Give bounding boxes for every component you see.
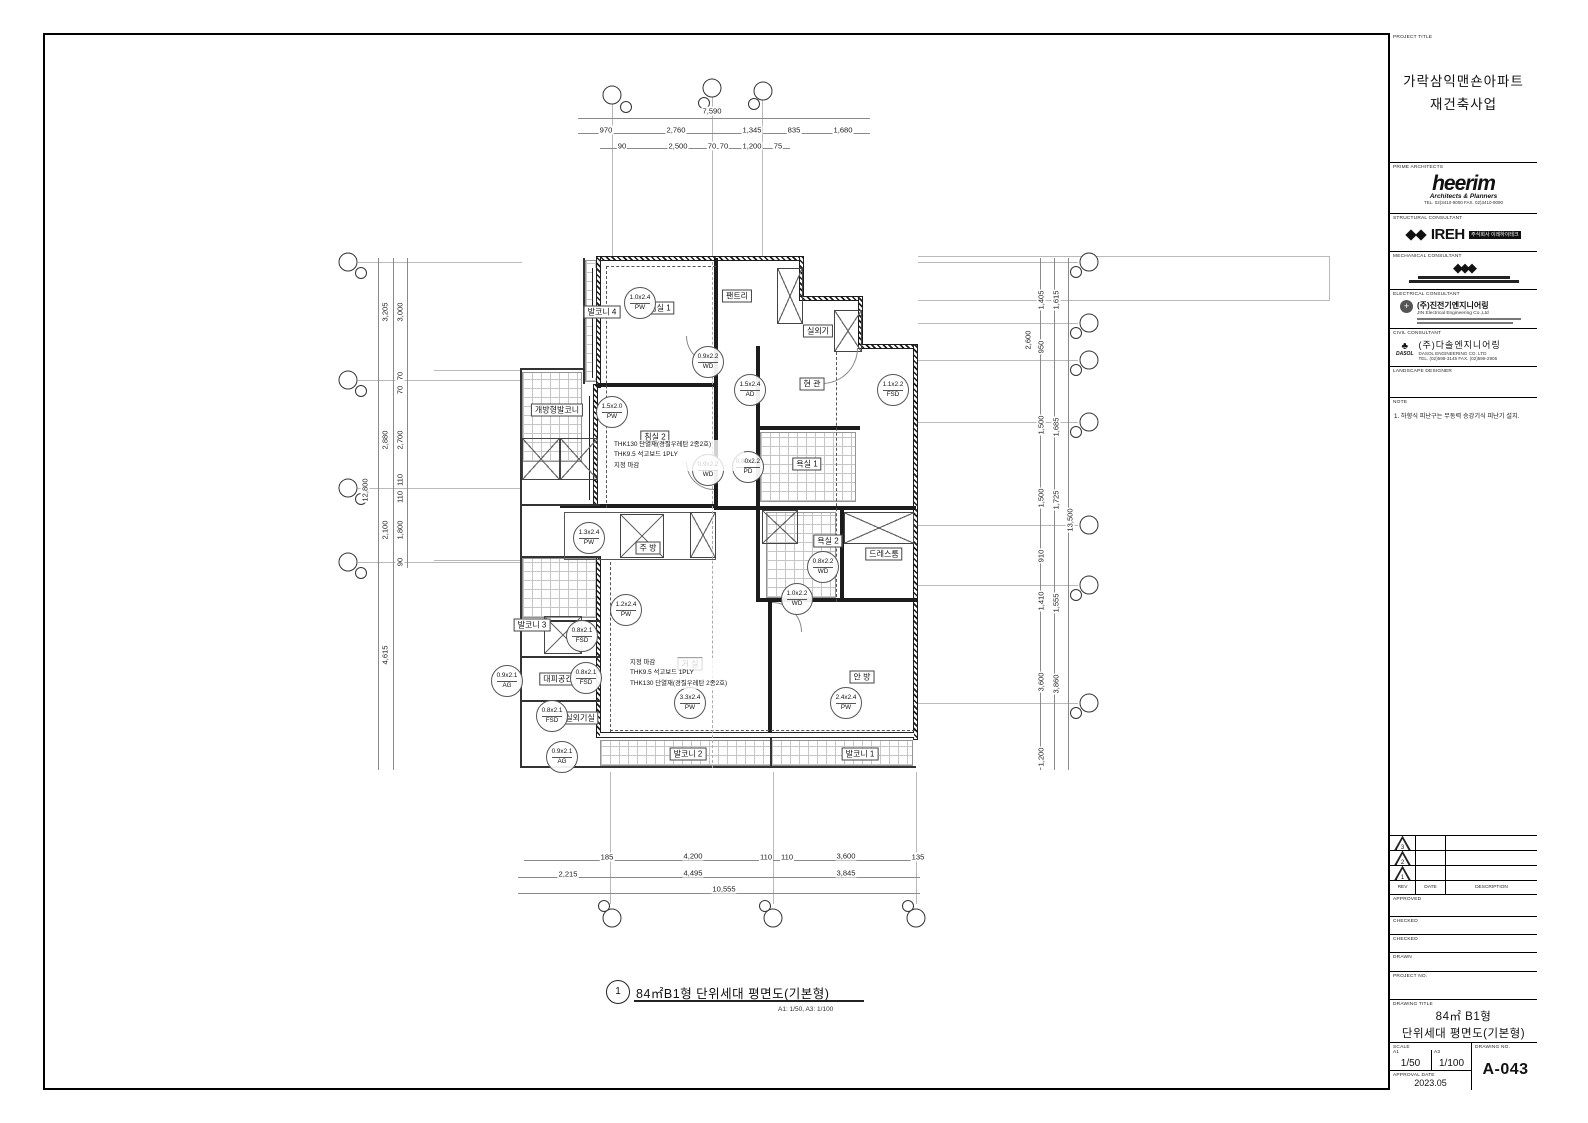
tag-size: 0.8x2.1: [576, 670, 597, 679]
scale-a1-value: 1/50: [1390, 1058, 1431, 1069]
grid-bubble: [598, 900, 610, 912]
tag-code: WD: [792, 601, 803, 607]
door-tag: 0.8x2.1FSD: [566, 620, 598, 652]
tag-size: 0.8x2.1: [542, 708, 563, 717]
mechanical-text-bar: [1418, 276, 1510, 279]
civil-name: (주)다솔엔지니어링: [1419, 338, 1501, 351]
revision-number: 3: [1394, 845, 1411, 851]
revision-triangle-icon: 3: [1394, 836, 1411, 851]
grid-bubble: [355, 385, 367, 397]
dim-label: 70: [707, 142, 717, 151]
dim-label: 70: [396, 371, 405, 381]
tag-code: PW: [841, 705, 851, 711]
dim-label: 1,500: [1037, 414, 1046, 435]
drawing-no-cell: DRAWING NO. A-043: [1472, 1043, 1539, 1090]
door-tag: 0.9x2.1AG: [491, 665, 523, 697]
insulation-line: [606, 266, 607, 508]
dim-label: 950: [1037, 340, 1046, 355]
grid-line: [358, 262, 522, 263]
dim-label: 7,590: [701, 107, 722, 116]
tag-code: WD: [703, 472, 714, 478]
tag-code: AD: [746, 392, 755, 398]
window-tag: 2.4x2.4PW: [830, 687, 862, 719]
grid-bubble: [759, 900, 771, 912]
door-tag: 1.2x2.4PW: [610, 594, 642, 626]
ireh-chip: 주식회사 이레하이테크: [1469, 231, 1520, 239]
dasol-logo: ♣ DASOL: [1396, 342, 1414, 357]
grid-bubble: [339, 553, 358, 572]
caption-underline: [634, 1000, 864, 1002]
electrical-text-bar: [1417, 322, 1513, 324]
electrical-sub: JIN Electrical Engineering Co.,Ltd: [1417, 311, 1521, 316]
insulation-note: 지정 마감 THK9.5 석고보드 1PLY THK130 단열재(경질우레탄 …: [630, 658, 760, 689]
scale-cell: SCALE A1 1/50 A3 1/100: [1390, 1043, 1472, 1071]
dim-label: 12,800: [361, 477, 370, 502]
dim-label: 2,215: [557, 870, 578, 879]
tag-code: AG: [502, 683, 511, 689]
door-tag: 1.5x2.4AD: [734, 374, 766, 406]
tag-size: 1.0x2.4: [630, 295, 651, 304]
shaft: [834, 310, 862, 352]
grid-bubble: [1080, 351, 1099, 370]
revision-number: 2: [1394, 860, 1411, 866]
project-title-line1: 가락삼익맨숀아파트: [1390, 71, 1537, 94]
grid-bubble: [1080, 314, 1099, 333]
door-tag: 1.0x2.4PW: [624, 287, 656, 319]
note-line: THK9.5 석고보드 1PLY: [630, 668, 760, 678]
tag-code: PD: [744, 469, 753, 475]
shaft: [522, 438, 560, 480]
approved-cell: APPROVED: [1390, 895, 1537, 917]
wall: [858, 344, 918, 349]
door-tag: 0.9x2.1AG: [546, 741, 578, 773]
dim-label: 10,555: [711, 885, 736, 894]
wall: [520, 368, 522, 768]
room-label-balcony3: 발코니 3: [514, 619, 551, 632]
dim-label: 1,500: [1037, 487, 1046, 508]
landscape-designer-cell: LANDSCAPE DESIGNER: [1390, 367, 1537, 398]
dim-label: 110: [396, 473, 405, 487]
drawn-label: DRAWN: [1393, 955, 1412, 960]
dim-label: 90: [617, 142, 627, 151]
tag-code: WD: [818, 569, 829, 575]
tag-size: 0.8x2.2: [813, 559, 834, 568]
door-tag: 0.8x2.1FSD: [570, 662, 602, 694]
tag-size: 1.2x2.4: [616, 602, 637, 611]
electrical-text-bar: [1417, 318, 1521, 320]
grid-line: [358, 562, 522, 563]
grid-line: [773, 772, 774, 904]
shaft: [560, 438, 598, 480]
balcony3-floor: [522, 558, 598, 618]
context-line: [918, 300, 1330, 301]
civil-consultant-cell: CIVIL CONSULTANT ♣ DASOL (주)다솔엔지니어링 DASO…: [1390, 329, 1537, 367]
dimension-line: [578, 118, 870, 119]
landscape-label: LANDSCAPE DESIGNER: [1393, 369, 1452, 374]
note-line: THK130 단열재(경질우레탄 2종2호): [614, 440, 744, 450]
checked-cell: CHECKED: [1390, 935, 1537, 953]
dim-label: 2,880: [381, 429, 390, 450]
room-label-ac-unit: 실외기: [803, 325, 833, 338]
drawing-title: 84㎡ B1형 단위세대 평면도(기본형): [1390, 1009, 1537, 1042]
grid-bubble: [339, 253, 358, 272]
electrical-logo-row: + (주)진전기엔지니어링 JIN Electrical Engineering…: [1400, 300, 1521, 324]
insulation-line: [610, 562, 611, 732]
tag-size: 1.1x2.2: [883, 382, 904, 391]
project-no-label: PROJECT NO.: [1393, 974, 1427, 979]
scale-a3-cell: A3 1/100: [1431, 1050, 1472, 1071]
room-label-balcony1: 발코니 1: [842, 748, 879, 761]
caption-number: 1: [606, 980, 630, 1004]
dimension-line: [1040, 258, 1041, 770]
dim-label: 1,345: [741, 126, 762, 135]
dim-label: 110: [759, 853, 773, 862]
approved-label: APPROVED: [1393, 897, 1421, 902]
revision-row: 1: [1390, 866, 1537, 881]
shaft: [762, 510, 798, 544]
dim-label: 2,700: [396, 429, 405, 450]
electrical-label: ELECTRICAL CONSULTANT: [1393, 292, 1460, 297]
electrical-consultant-cell: ELECTRICAL CONSULTANT + (주)진전기엔지니어링 JIN …: [1390, 290, 1537, 329]
note-cell: NOTE 1. 하향식 피난구는 무동력 승강기식 피난기 설치.: [1390, 398, 1537, 836]
dim-label: 1,555: [1052, 592, 1061, 613]
dim-label: 1,200: [1037, 746, 1046, 767]
title-block: PROJECT TITLE 가락삼익맨숀아파트 재건축사업 PRIME ARCH…: [1388, 33, 1537, 1090]
checked-label: CHECKED: [1393, 919, 1418, 924]
dim-label: 1,405: [1037, 289, 1046, 310]
tag-code: AG: [557, 759, 566, 765]
dim-label: 1,615: [1052, 289, 1061, 310]
context-line: [1329, 256, 1330, 301]
tag-size: 1.3x2.4: [579, 530, 600, 539]
description-header: DESCRIPTION: [1446, 881, 1537, 894]
grid-bubble: [355, 267, 367, 279]
approval-date-value: 2023.05: [1390, 1078, 1471, 1088]
grid-bubble: [355, 567, 367, 579]
project-no-cell: PROJECT NO.: [1390, 972, 1537, 1000]
dim-label: 3,845: [835, 869, 856, 878]
mechanical-label: MECHANICAL CONSULTANT: [1393, 254, 1462, 259]
grid-line: [358, 488, 522, 489]
wall: [770, 738, 772, 768]
caption-scale: A1: 1/50, A3: 1/100: [778, 1006, 833, 1013]
revision-triangle-icon: 2: [1394, 851, 1411, 866]
wall: [598, 256, 804, 261]
revision-row: 3: [1390, 836, 1537, 851]
note-line: THK9.5 석고보드 1PLY: [614, 450, 744, 460]
door-tag: 1.5x2.0PW: [596, 396, 628, 428]
drawing-title-label: DRAWING TITLE: [1393, 1002, 1433, 1007]
tag-size: 1.0x2.2: [787, 591, 808, 600]
heerim-name: heerim: [1390, 175, 1537, 193]
door-tag: 1.3x2.4PW: [573, 522, 605, 554]
room-label-open-balcony: 개방형발코니: [531, 404, 583, 417]
room-label-master-bedroom: 안 방: [850, 671, 875, 684]
dimension-line: [393, 258, 394, 770]
drawing-sheet: 침실 1 침실 2 팬트리 실외기 현 관 욕실 1 욕실 2 드레스룸 주 방…: [0, 0, 1588, 1123]
dim-label: 3,205: [381, 301, 390, 322]
dim-label: 90: [396, 557, 405, 567]
dimension-line: [578, 133, 870, 134]
note-line: 지정 마감: [614, 461, 744, 471]
dim-label: 70: [719, 142, 729, 151]
tag-code: FSD: [580, 680, 593, 686]
wall: [583, 258, 585, 384]
wall: [520, 656, 600, 658]
context-line: [918, 256, 1330, 257]
wall: [520, 504, 600, 506]
structural-label: STRUCTURAL CONSULTANT: [1393, 216, 1462, 221]
tag-code: PW: [607, 414, 617, 420]
tag-size: 0.9x2.2: [698, 354, 719, 363]
grid-bubble: [1070, 266, 1082, 278]
dim-label: 1,685: [1052, 416, 1061, 437]
tag-size: 1.5x2.0: [602, 404, 623, 413]
dimension-line: [378, 258, 379, 770]
wall: [520, 766, 916, 768]
dim-label: 1,200: [741, 142, 762, 151]
revision-triangle-icon: 1: [1394, 866, 1411, 881]
door-tag: 0.9x2.2WD: [692, 346, 724, 378]
dim-label: 110: [780, 853, 794, 862]
grid-bubble: [1080, 516, 1099, 535]
wall: [520, 368, 584, 370]
mechanical-consultant-cell: MECHANICAL CONSULTANT ◆◆◆: [1390, 252, 1537, 290]
tag-code: PW: [685, 705, 695, 711]
dim-label: 1,725: [1052, 489, 1061, 510]
window: [600, 732, 914, 738]
scale-a3-label: A3: [1434, 1050, 1440, 1055]
dim-label: 70: [396, 385, 405, 395]
drawing-no-label: DRAWING NO.: [1475, 1045, 1510, 1050]
project-title-cell: PROJECT TITLE 가락삼익맨숀아파트 재건축사업: [1390, 33, 1537, 163]
insulation-note: THK130 단열재(경질우레탄 2종2호) THK9.5 석고보드 1PLY …: [614, 440, 744, 471]
context-line: [434, 560, 520, 561]
dasol-mark-icon: ♣: [1396, 342, 1414, 351]
dim-label: 13,500: [1066, 507, 1075, 532]
tag-code: PW: [621, 612, 631, 618]
door-tag: 1.1x2.2FSD: [877, 374, 909, 406]
revision-header-row: REV DATE DESCRIPTION: [1390, 881, 1537, 895]
dim-label: 2,500: [667, 142, 688, 151]
grid-bubble: [1070, 364, 1082, 376]
ireh-diamond-icon: [1416, 229, 1427, 240]
insulation-line: [610, 730, 915, 731]
checked-label: CHECKED: [1393, 937, 1418, 942]
dim-label: 135: [911, 853, 926, 862]
room-label-balcony4: 발코니 4: [584, 306, 621, 319]
drawing-title-line2: 단위세대 평면도(기본형): [1390, 1026, 1537, 1043]
shaft: [844, 512, 914, 544]
room-label-kitchen: 주 방: [636, 542, 661, 555]
dim-label: 3,860: [1052, 673, 1061, 694]
prime-architects-label: PRIME ARCHITECTS: [1393, 165, 1443, 170]
note-label: NOTE: [1393, 400, 1407, 405]
wall: [799, 296, 863, 301]
grid-bubble: [620, 101, 632, 113]
project-title: 가락삼익맨숀아파트 재건축사업: [1390, 71, 1537, 117]
grid-bubble: [1080, 413, 1099, 432]
dim-label: 4,495: [682, 869, 703, 878]
drawn-cell: DRAWN: [1390, 953, 1537, 972]
approval-date-cell: APPROVAL DATE 2023.05: [1390, 1071, 1472, 1090]
shaft: [777, 268, 803, 324]
drawing-title-cell: DRAWING TITLE 84㎡ B1형 단위세대 평면도(기본형): [1390, 1000, 1537, 1043]
dim-label: 2,600: [1024, 329, 1033, 350]
grid-bubble: [1080, 576, 1099, 595]
note-text: 1. 하향식 피난구는 무동력 승강기식 피난기 설치.: [1394, 412, 1534, 421]
grid-line: [610, 772, 611, 904]
dim-label: 970: [599, 126, 614, 135]
electrical-name: (주)진전기엔지니어링: [1417, 300, 1521, 311]
tag-size: 0.9x2.1: [497, 673, 518, 682]
grid-bubble: [603, 86, 622, 105]
room-label-entrance: 현 관: [800, 378, 825, 391]
wall: [714, 506, 916, 510]
window-tag: 3.3x2.4PW: [674, 687, 706, 719]
door-tag: 0.8x2.2WD: [807, 551, 839, 583]
heerim-subtitle: Architects & Planners: [1390, 193, 1537, 200]
dim-label: 2,100: [381, 519, 390, 540]
dim-label: 75: [773, 142, 783, 151]
date-header: DATE: [1416, 881, 1446, 894]
ireh-name: IREH: [1431, 226, 1465, 243]
grid-line: [358, 380, 522, 381]
prime-architects-cell: PRIME ARCHITECTS heerim Architects & Pla…: [1390, 163, 1537, 214]
room-label-dressroom: 드레스룸: [865, 548, 902, 561]
revision-number: 1: [1394, 875, 1411, 881]
tag-size: 3.3x2.4: [680, 695, 701, 704]
tag-size: 0.9x2.1: [552, 749, 573, 758]
tag-size: 0.8x2.1: [572, 628, 593, 637]
grid-bubble: [902, 900, 914, 912]
rev-header: REV: [1390, 881, 1416, 894]
heerim-tel: TEL. 02)3410-9000 FAX. 02)3410-9090: [1390, 200, 1537, 205]
wall: [598, 383, 718, 387]
civil-logo-row: ♣ DASOL (주)다솔엔지니어링 DASOL ENGINEERING CO.…: [1396, 338, 1501, 361]
grid-bubble: [1070, 426, 1082, 438]
electrical-logo-icon: +: [1400, 300, 1413, 313]
scale-a1-cell: A1 1/50: [1390, 1050, 1432, 1071]
approval-date-label: APPROVAL DATE: [1393, 1073, 1435, 1078]
dimension-line: [407, 258, 408, 568]
tag-code: FSD: [576, 638, 589, 644]
project-title-label: PROJECT TITLE: [1393, 35, 1432, 40]
checked-cell: CHECKED: [1390, 917, 1537, 935]
grid-bubble: [339, 371, 358, 390]
door-tag: 0.8x2.1FSD: [536, 700, 568, 732]
grid-bubble: [339, 479, 358, 498]
note-line: 지정 마감: [630, 658, 760, 668]
grid-bubble: [1080, 694, 1099, 713]
dimension-line: [524, 860, 920, 861]
dim-label: 2,760: [665, 126, 686, 135]
window: [592, 268, 597, 378]
structural-consultant-cell: STRUCTURAL CONSULTANT IREH 주식회사 이레하이테크: [1390, 214, 1537, 252]
project-title-line2: 재건축사업: [1390, 94, 1537, 117]
dim-label: 910: [1037, 549, 1046, 564]
note-line: THK130 단열재(경질우레탄 2종2호): [630, 679, 760, 689]
dim-label: 1,410: [1037, 590, 1046, 611]
tag-code: WD: [703, 364, 714, 370]
insulation-line: [606, 266, 716, 267]
dim-label: 3,600: [1037, 671, 1046, 692]
dim-label: 3,600: [835, 852, 856, 861]
tag-code: PW: [584, 540, 594, 546]
grid-line: [762, 97, 763, 258]
scale-a1-label: A1: [1393, 1050, 1399, 1055]
drawing-no-value: A-043: [1472, 1061, 1539, 1079]
heerim-logo: heerim Architects & Planners TEL. 02)341…: [1390, 175, 1537, 205]
mechanical-diamonds-icon: ◆◆◆: [1390, 262, 1537, 274]
dim-label: 4,615: [381, 644, 390, 665]
scale-a3-value: 1/100: [1431, 1058, 1472, 1069]
tag-size: 1.5x2.4: [740, 382, 761, 391]
dim-label: 185: [600, 853, 615, 862]
wall: [756, 426, 860, 430]
drawing-title-line1: 84㎡ B1형: [1390, 1009, 1537, 1026]
tag-code: FSD: [546, 718, 559, 724]
tag-size: 2.4x2.4: [836, 695, 857, 704]
room-label-bath2: 욕실 2: [813, 535, 842, 548]
revision-row: 2: [1390, 851, 1537, 866]
tag-code: PW: [635, 305, 645, 311]
room-label-balcony2: 발코니 2: [670, 748, 707, 761]
grid-bubble: [703, 79, 722, 98]
dim-label: 835: [787, 126, 802, 135]
grid-bubble: [1070, 327, 1082, 339]
grid-bubble: [748, 98, 760, 110]
mechanical-logo: ◆◆◆: [1390, 262, 1537, 283]
dim-label: 3,000: [396, 301, 405, 322]
tag-code: FSD: [887, 392, 900, 398]
dim-label: 1,680: [832, 126, 853, 135]
context-line: [434, 370, 520, 371]
ireh-logo: IREH 주식회사 이레하이테크: [1390, 226, 1537, 244]
grid-bubble: [1080, 253, 1099, 272]
mechanical-text-bar: [1409, 280, 1519, 283]
dim-label: 110: [396, 490, 405, 504]
grid-bubble: [1070, 589, 1082, 601]
civil-label: CIVIL CONSULTANT: [1393, 331, 1441, 336]
dasol-wordmark: DASOL: [1396, 351, 1414, 357]
civil-tel: TEL. (02)598-3145 FAX. (02)598-2905: [1419, 356, 1501, 361]
room-label-pantry: 팬트리: [722, 290, 752, 303]
dim-label: 4,200: [682, 852, 703, 861]
grid-bubble: [1070, 707, 1082, 719]
room-label-bath1: 욕실 1: [792, 458, 821, 471]
dim-label: 1,800: [396, 519, 405, 540]
grid-line: [916, 772, 917, 904]
door-tag: 1.0x2.2WD: [781, 583, 813, 615]
